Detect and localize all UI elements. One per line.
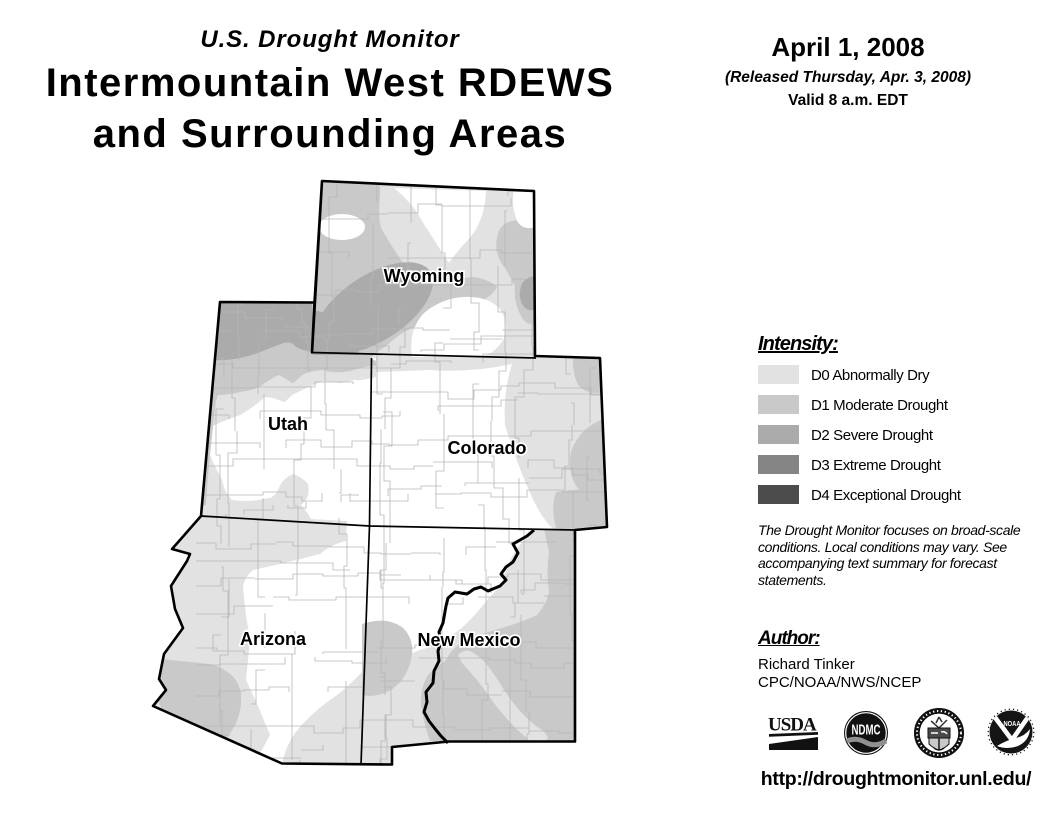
svg-text:NDMC: NDMC — [852, 722, 881, 739]
svg-text:NOAA: NOAA — [1004, 719, 1021, 728]
svg-text:Colorado: Colorado — [448, 438, 527, 458]
svg-text:New Mexico: New Mexico — [417, 630, 520, 650]
svg-text:Arizona: Arizona — [240, 629, 307, 649]
svg-text:Utah: Utah — [268, 414, 308, 434]
svg-text:Wyoming: Wyoming — [384, 266, 465, 286]
